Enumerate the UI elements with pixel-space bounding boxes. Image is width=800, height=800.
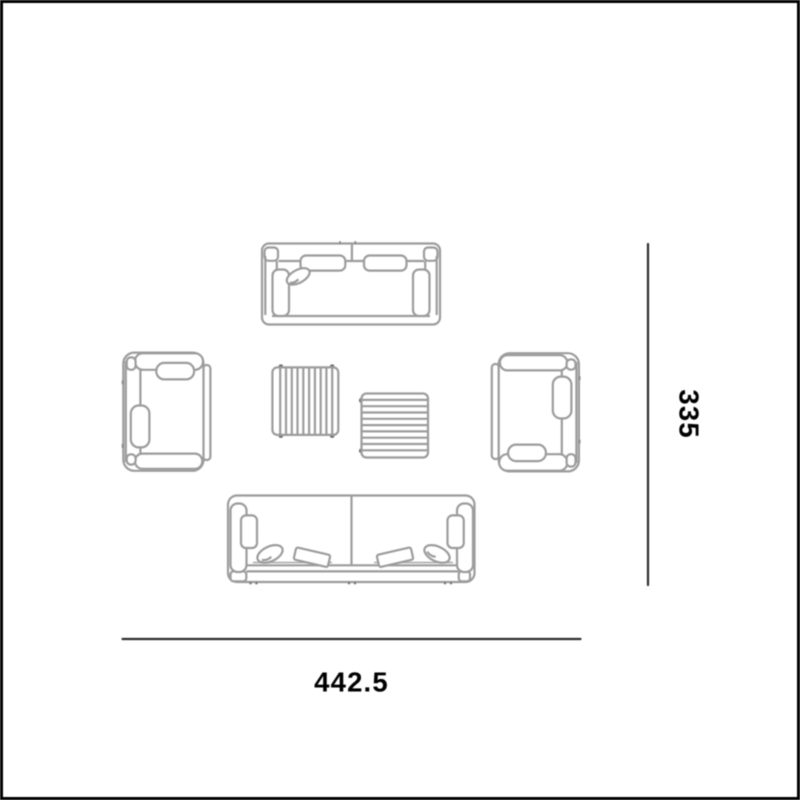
svg-text:442.5: 442.5 (314, 667, 389, 698)
svg-text:335: 335 (674, 389, 705, 438)
